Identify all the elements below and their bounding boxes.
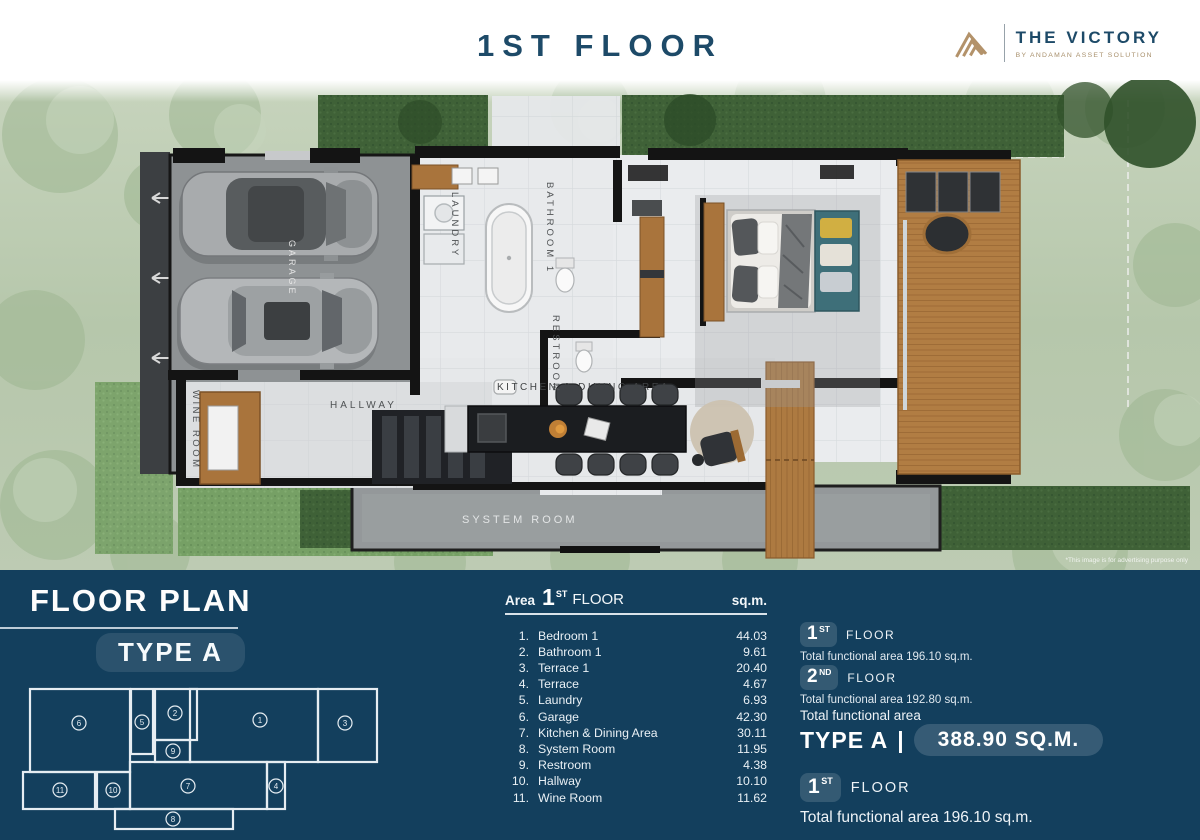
table-row: 8.System Room11.95 [505,741,767,757]
deck-table [924,215,970,253]
table-row: 6.Garage42.30 [505,708,767,724]
type-a-badge: TYPE A [96,633,245,672]
minimap-num-6: 6 [77,719,82,728]
area-label: Area [505,593,535,608]
deck-bench [906,172,1000,212]
brand-name: THE VICTORY [1016,28,1162,48]
mountain-chevron-icon [951,24,993,62]
table-row: 1.Bedroom 144.03 [505,628,767,644]
reading-corner [690,400,754,468]
minimap-num-2: 2 [173,709,178,718]
kitchen-dining-label: KITCHEN & DINING AREA [497,382,670,393]
table-row: 7.Kitchen & Dining Area30.11 [505,725,767,741]
total-area-row: TYPE A | 388.90 SQ.M. [800,724,1103,756]
minimap-num-11: 11 [56,786,65,795]
floor-number: 1 [542,588,555,608]
floor-plan-title: FLOOR PLAN [30,583,252,619]
wine-room-label: WINE ROOM [190,390,201,470]
wine-room [200,392,260,484]
table-row: 3.Terrace 120.40 [505,660,767,676]
restroom-toilet [576,342,592,372]
table-row: 9.Restroom4.38 [505,757,767,773]
floor-1-total: Total functional area 196.10 sq.m. [800,651,973,663]
bathroom1-label: BATHROOM 1 [544,182,555,274]
minimap-num-5: 5 [140,718,145,727]
system-room: SYSTEM ROOM [352,486,940,553]
area-table: Area 1 ST FLOOR sq.m. 1.Bedroom 144.03 2… [505,588,767,806]
minimap: 1 2 3 4 5 6 7 8 9 10 11 [20,682,380,834]
brand-divider [1004,24,1005,62]
minimap-rooms [23,689,377,829]
floor-1-badge: 1 ST [800,622,837,647]
floor-2-badge: 2 ND [800,665,838,690]
brochure-page: 1ST FLOOR THE VICTORY BY ANDAMAN ASSET S… [0,0,1200,840]
bed [727,210,815,312]
floor-1-highlight: 1 ST FLOOR Total functional area 196.10 … [800,773,1033,827]
system-room-label: SYSTEM ROOM [462,514,578,526]
title-underline [0,627,238,629]
minimap-num-7: 7 [186,782,191,791]
area-table-rows: 1.Bedroom 144.03 2.Bathroom 19.61 3.Terr… [505,628,767,806]
garage-label: GARAGE [287,240,297,297]
car-sedan [177,273,378,370]
table-row: 10.Hallway10.10 [505,773,767,789]
floor-plan-render: SYSTEM ROOM [0,80,1200,570]
toilet [556,258,574,292]
total-separator: | [897,727,903,754]
floor-2-total: Total functional area 192.80 sq.m. [800,694,973,706]
floor-summary-2: 2 ND FLOOR Total functional area 192.80 … [800,665,973,706]
minimap-num-9: 9 [171,747,176,756]
table-row: 2.Bathroom 19.61 [505,644,767,660]
minimap-num-10: 10 [109,786,118,795]
car-suv [179,167,379,264]
total-area-pill: 388.90 SQ.M. [914,724,1104,756]
minimap-num-4: 4 [274,782,279,791]
total-type-name: TYPE A [800,727,888,754]
hallway-label: HALLWAY [330,400,397,411]
bed-bench [815,211,859,311]
disclaimer-text: *This image is for advertising purpose o… [1066,557,1189,564]
highlight-total: Total functional area 196.10 sq.m. [800,809,1033,827]
floor-ordinal: ST [556,589,568,599]
floor-summary-1: 1 ST FLOOR Total functional area 196.10 … [800,622,973,663]
area-table-header: Area 1 ST FLOOR sq.m. [505,588,767,615]
footer: FLOOR PLAN TYPE A [0,570,1200,840]
floor-plan-svg: SYSTEM ROOM [0,80,1200,570]
brand-tagline: BY ANDAMAN ASSET SOLUTION [1016,52,1162,59]
highlight-floor-badge: 1 ST [800,773,841,802]
table-row: 5.Laundry6.93 [505,692,767,708]
floor-word: FLOOR [572,591,624,608]
header: 1ST FLOOR THE VICTORY BY ANDAMAN ASSET S… [0,0,1200,80]
minimap-num-8: 8 [171,815,176,824]
totals-column: 1 ST FLOOR Total functional area 196.10 … [800,570,1170,840]
terrace-deck [898,160,1020,474]
laundry-label: LAUNDRY [449,192,460,258]
unit-label: sq.m. [732,593,767,608]
minimap-num-1: 1 [258,716,263,725]
table-row: 4.Terrace4.67 [505,676,767,692]
table-row: 11.Wine Room11.62 [505,789,767,805]
brand-text: THE VICTORY BY ANDAMAN ASSET SOLUTION [1016,28,1162,59]
total-area-label: Total functional area [800,708,921,723]
brand-logo: THE VICTORY BY ANDAMAN ASSET SOLUTION [951,24,1162,62]
minimap-num-3: 3 [343,719,348,728]
